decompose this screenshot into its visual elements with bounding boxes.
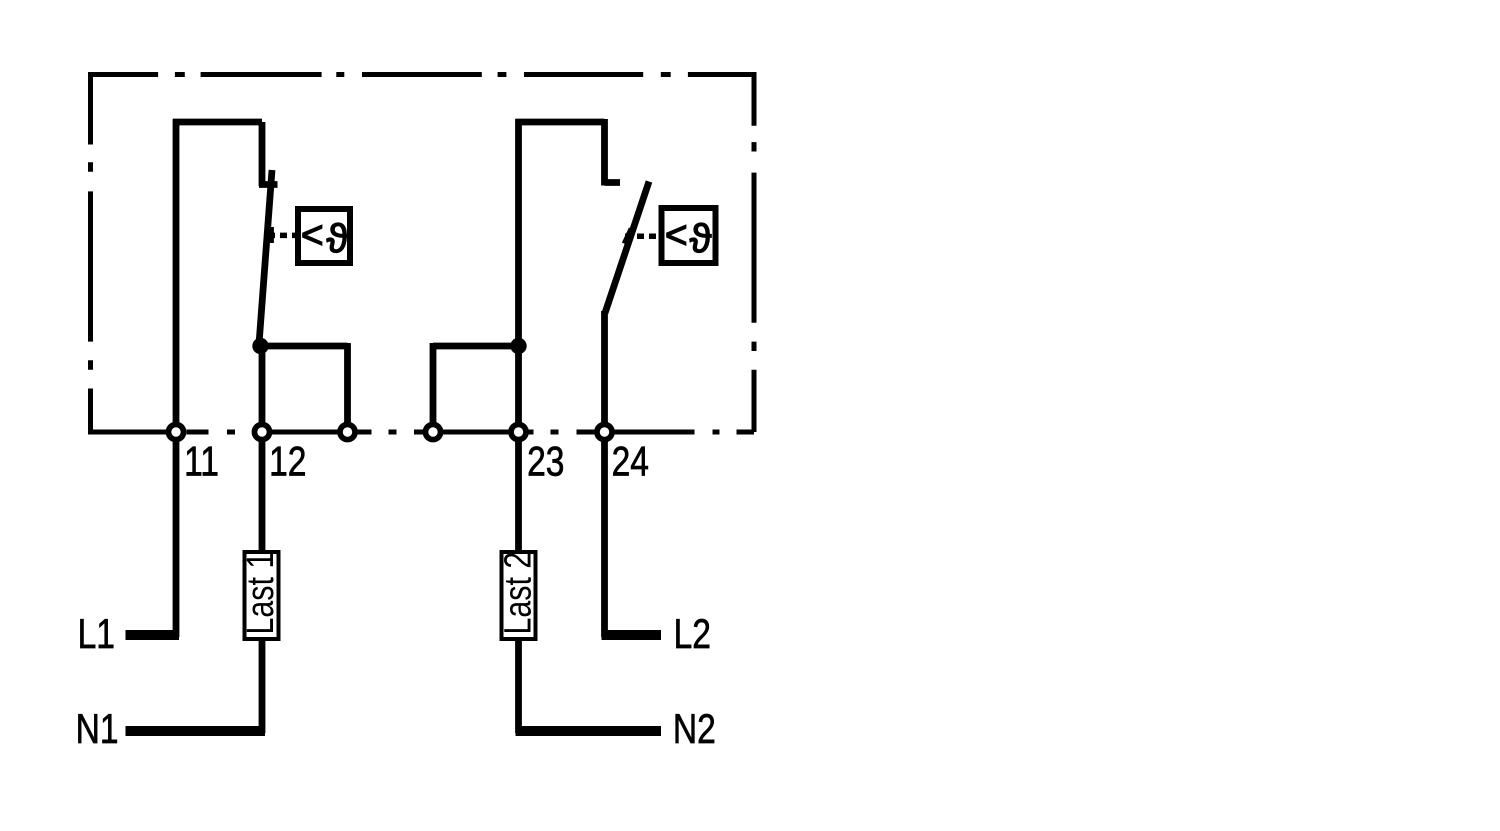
svg-text:L1: L1	[78, 612, 115, 658]
svg-text:11: 11	[184, 439, 219, 485]
svg-text:N2: N2	[673, 707, 716, 753]
svg-text:N1: N1	[76, 707, 119, 753]
svg-text:Last 2: Last 2	[497, 552, 539, 635]
svg-text:24: 24	[612, 439, 649, 485]
svg-text:<: <	[665, 214, 688, 257]
svg-text:L2: L2	[674, 612, 711, 658]
svg-text:12: 12	[269, 439, 306, 485]
svg-text:<: <	[301, 214, 324, 257]
svg-text:23: 23	[527, 439, 564, 485]
svg-text:ϑ: ϑ	[327, 217, 349, 261]
svg-text:ϑ: ϑ	[690, 217, 712, 261]
